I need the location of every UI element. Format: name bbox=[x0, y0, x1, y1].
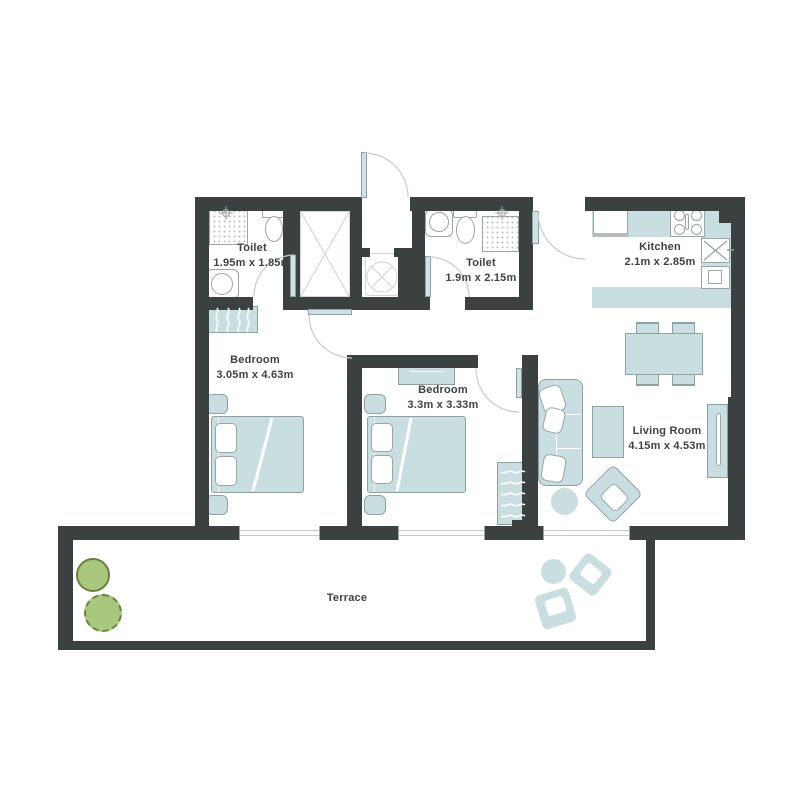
room-name: Bedroom bbox=[363, 383, 523, 398]
room-dimensions: 1.9m x 2.15m bbox=[401, 271, 561, 286]
hanger-icons bbox=[501, 471, 525, 517]
blanket-fold bbox=[253, 418, 272, 491]
room-label-terrace: Terrace bbox=[267, 591, 427, 606]
shower-head-icon bbox=[219, 206, 233, 220]
room-dimensions: 1.95m x 1.85m bbox=[172, 256, 332, 271]
blanket-fold bbox=[397, 418, 411, 491]
room-label-toilet-1: Toilet 1.95m x 1.85m bbox=[172, 241, 332, 271]
room-label-bedroom-2: Bedroom 3.3m x 3.33m bbox=[363, 383, 523, 413]
door-arc-entry bbox=[364, 153, 408, 197]
shower-head-icon bbox=[495, 206, 509, 220]
door-arc-bedroom-1 bbox=[309, 315, 352, 358]
room-label-bedroom-1: Bedroom 3.05m x 4.63m bbox=[175, 353, 335, 383]
room-name: Kitchen bbox=[580, 240, 740, 255]
room-dimensions: 4.15m x 4.53m bbox=[587, 439, 747, 454]
room-name: Toilet bbox=[401, 256, 561, 271]
room-name: Bedroom bbox=[175, 353, 335, 368]
room-label-kitchen: Kitchen 2.1m x 2.85m bbox=[580, 240, 740, 270]
room-dimensions: 3.3m x 3.33m bbox=[363, 398, 523, 413]
room-name: Toilet bbox=[172, 241, 332, 256]
washer-x-mark bbox=[371, 266, 393, 288]
door-arc-kitchen bbox=[538, 212, 585, 259]
room-name: Living Room bbox=[587, 424, 747, 439]
room-label-toilet-2: Toilet 1.9m x 2.15m bbox=[401, 256, 561, 286]
hanger-icons bbox=[216, 308, 249, 332]
room-dimensions: 2.1m x 2.85m bbox=[580, 255, 740, 270]
room-label-living-room: Living Room 4.15m x 4.53m bbox=[587, 424, 747, 454]
room-dimensions: 3.05m x 4.63m bbox=[175, 368, 335, 383]
floor-plan: Toilet 1.95m x 1.85m Toilet 1.9m x 2.15m… bbox=[0, 0, 800, 800]
room-name: Terrace bbox=[267, 591, 427, 606]
